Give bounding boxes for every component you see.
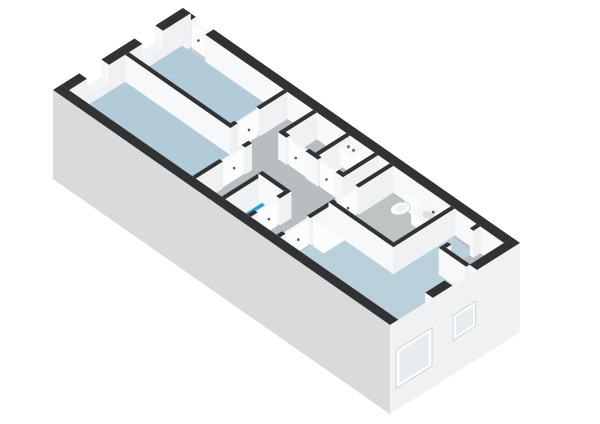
closet-door-2-handle: [325, 178, 328, 181]
wc-door-handle: [268, 218, 271, 221]
bathroom-door-handle: [347, 207, 350, 210]
closet-front-wall-a-side: [278, 132, 286, 165]
floorplan-3d-view: [0, 0, 600, 424]
bedroom-2-wall-a-side: [245, 143, 252, 174]
storage-wall-a-side: [470, 228, 474, 258]
bathroom-right-wall-side: [390, 245, 394, 275]
floorplan-canvas: [0, 0, 600, 424]
back-door-handle: [197, 39, 200, 42]
boiler-unit-pipe-1: [347, 145, 350, 148]
living-room-door-handle: [297, 238, 300, 241]
bedroom-1-door-handle: [248, 129, 251, 132]
washbasin-counter-tap: [432, 211, 435, 214]
bedroom-2-door-handle: [233, 167, 236, 170]
closet-door-1-handle: [294, 157, 297, 160]
bedroom-partition-wall-side: [230, 126, 234, 155]
boiler-unit-pipe-2: [352, 149, 355, 152]
storage-wall-a-side: [473, 226, 480, 257]
